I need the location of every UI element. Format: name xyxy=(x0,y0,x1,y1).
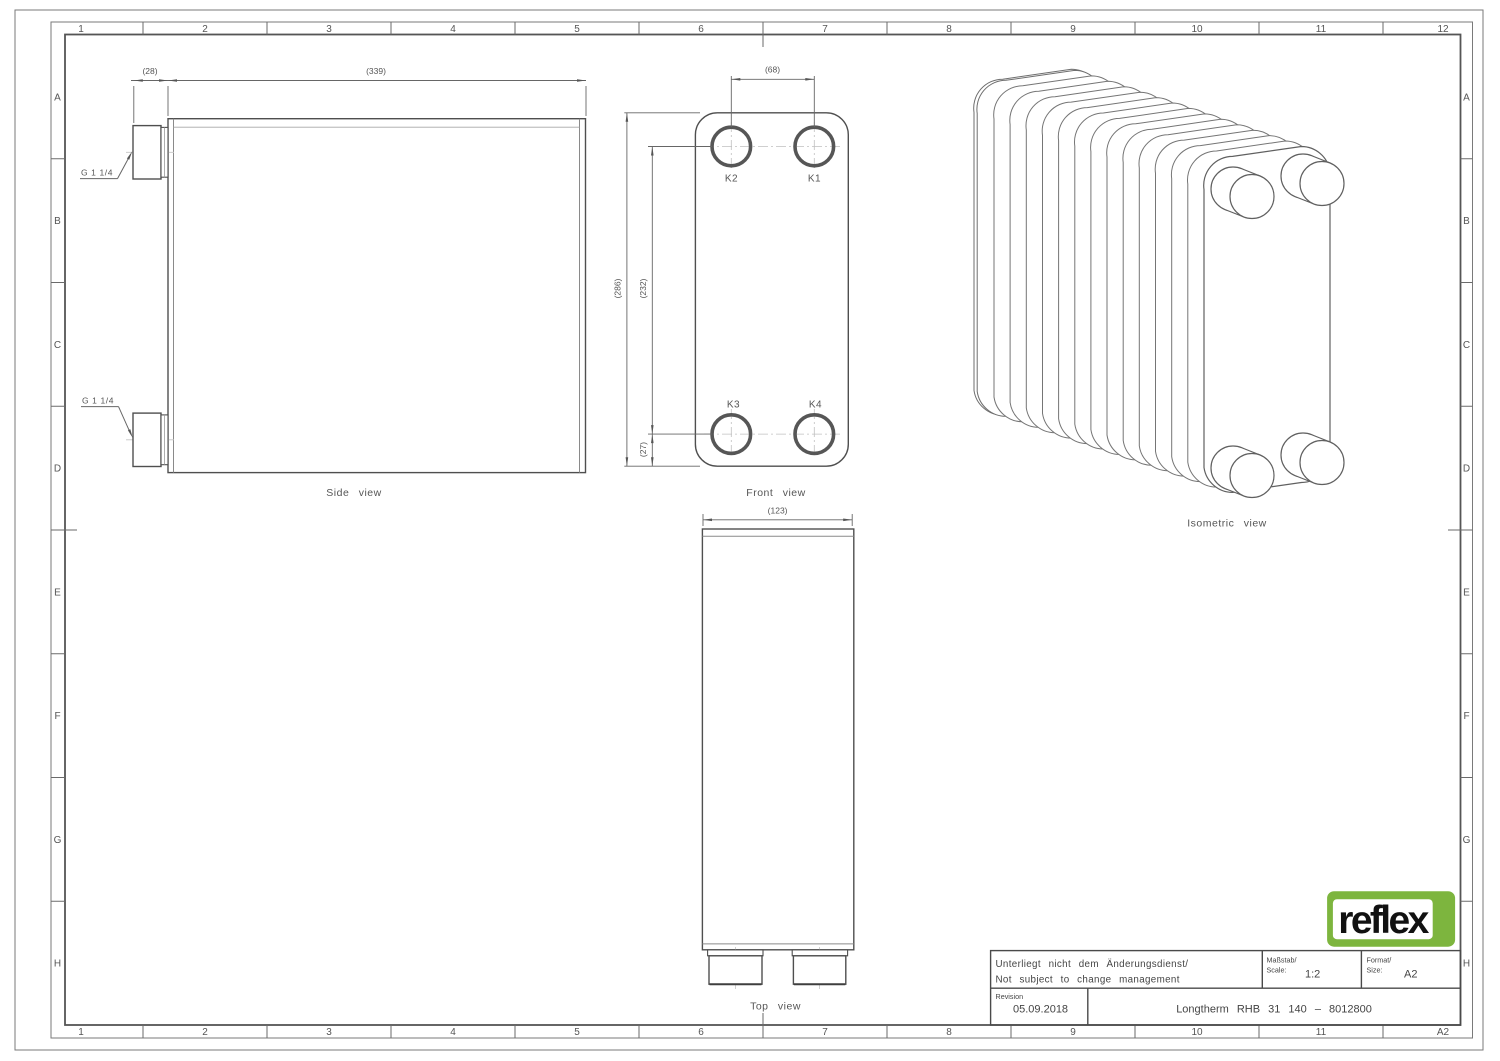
svg-text:B: B xyxy=(1463,216,1470,227)
svg-text:reflex: reflex xyxy=(1338,899,1429,942)
svg-text:(123): (123) xyxy=(768,506,788,516)
svg-text:A2: A2 xyxy=(1404,969,1417,981)
svg-text:7: 7 xyxy=(822,1027,828,1038)
svg-text:A: A xyxy=(1463,92,1470,103)
svg-text:F: F xyxy=(54,711,60,722)
svg-text:K3: K3 xyxy=(727,400,740,411)
svg-text:Maßstab/: Maßstab/ xyxy=(1267,956,1297,965)
svg-text:Size:: Size: xyxy=(1367,966,1383,975)
svg-text:8: 8 xyxy=(946,1027,952,1038)
svg-text:K4: K4 xyxy=(809,400,822,411)
svg-text:2: 2 xyxy=(202,1027,208,1038)
svg-text:8: 8 xyxy=(946,24,952,35)
svg-text:4: 4 xyxy=(450,1027,456,1038)
svg-text:H: H xyxy=(1463,959,1470,970)
svg-text:F: F xyxy=(1463,711,1469,722)
svg-text:G 1 1/4: G 1 1/4 xyxy=(82,396,114,406)
svg-text:Top view: Top view xyxy=(750,1001,801,1013)
svg-text:11: 11 xyxy=(1316,24,1327,35)
svg-text:(28): (28) xyxy=(142,66,157,76)
svg-text:(232): (232) xyxy=(638,278,648,298)
svg-text:6: 6 xyxy=(698,24,704,35)
svg-text:(339): (339) xyxy=(366,66,386,76)
svg-text:D: D xyxy=(54,464,61,475)
svg-text:E: E xyxy=(54,587,61,598)
svg-text:5: 5 xyxy=(574,24,580,35)
svg-text:(68): (68) xyxy=(765,65,780,75)
svg-text:G: G xyxy=(1463,835,1471,846)
svg-text:C: C xyxy=(54,340,61,351)
svg-text:7: 7 xyxy=(822,24,828,35)
svg-text:9: 9 xyxy=(1070,1027,1076,1038)
svg-text:H: H xyxy=(54,959,61,970)
svg-text:2: 2 xyxy=(202,24,208,35)
svg-text:11: 11 xyxy=(1316,1027,1327,1038)
svg-text:(286): (286) xyxy=(613,278,623,298)
svg-text:B: B xyxy=(54,216,61,227)
svg-text:Scale:: Scale: xyxy=(1267,966,1287,975)
svg-text:Unterliegt nicht dem Änderungs: Unterliegt nicht dem Änderungsdienst/ xyxy=(996,959,1189,970)
svg-text:Side view: Side view xyxy=(326,487,381,499)
svg-text:3: 3 xyxy=(326,1027,332,1038)
svg-text:Not subject to change manageme: Not subject to change management xyxy=(996,975,1180,986)
svg-text:G: G xyxy=(54,835,62,846)
svg-text:10: 10 xyxy=(1191,1027,1203,1038)
svg-text:(27): (27) xyxy=(638,442,648,457)
svg-text:C: C xyxy=(1463,340,1470,351)
svg-text:9: 9 xyxy=(1070,24,1076,35)
svg-text:1: 1 xyxy=(78,1027,84,1038)
svg-text:Front view: Front view xyxy=(746,487,805,499)
svg-text:D: D xyxy=(1463,464,1470,475)
svg-text:Longtherm RHB 31 140 – 8012800: Longtherm RHB 31 140 – 8012800 xyxy=(1176,1004,1372,1016)
svg-text:K2: K2 xyxy=(725,174,738,185)
svg-text:05.09.2018: 05.09.2018 xyxy=(1013,1004,1068,1016)
svg-text:1: 1 xyxy=(78,24,84,35)
svg-text:A2: A2 xyxy=(1437,1027,1450,1038)
svg-text:10: 10 xyxy=(1191,24,1203,35)
svg-text:5: 5 xyxy=(574,1027,580,1038)
svg-text:Format/: Format/ xyxy=(1367,956,1392,965)
svg-text:6: 6 xyxy=(698,1027,704,1038)
svg-text:G 1 1/4: G 1 1/4 xyxy=(81,168,113,178)
svg-text:K1: K1 xyxy=(808,174,821,185)
svg-text:A: A xyxy=(54,92,61,103)
svg-text:3: 3 xyxy=(326,24,332,35)
svg-text:Revision: Revision xyxy=(996,992,1024,1001)
svg-text:Isometric view: Isometric view xyxy=(1187,518,1267,530)
svg-text:4: 4 xyxy=(450,24,456,35)
svg-text:1:2: 1:2 xyxy=(1305,969,1320,981)
svg-text:E: E xyxy=(1463,587,1470,598)
svg-text:12: 12 xyxy=(1437,24,1449,35)
